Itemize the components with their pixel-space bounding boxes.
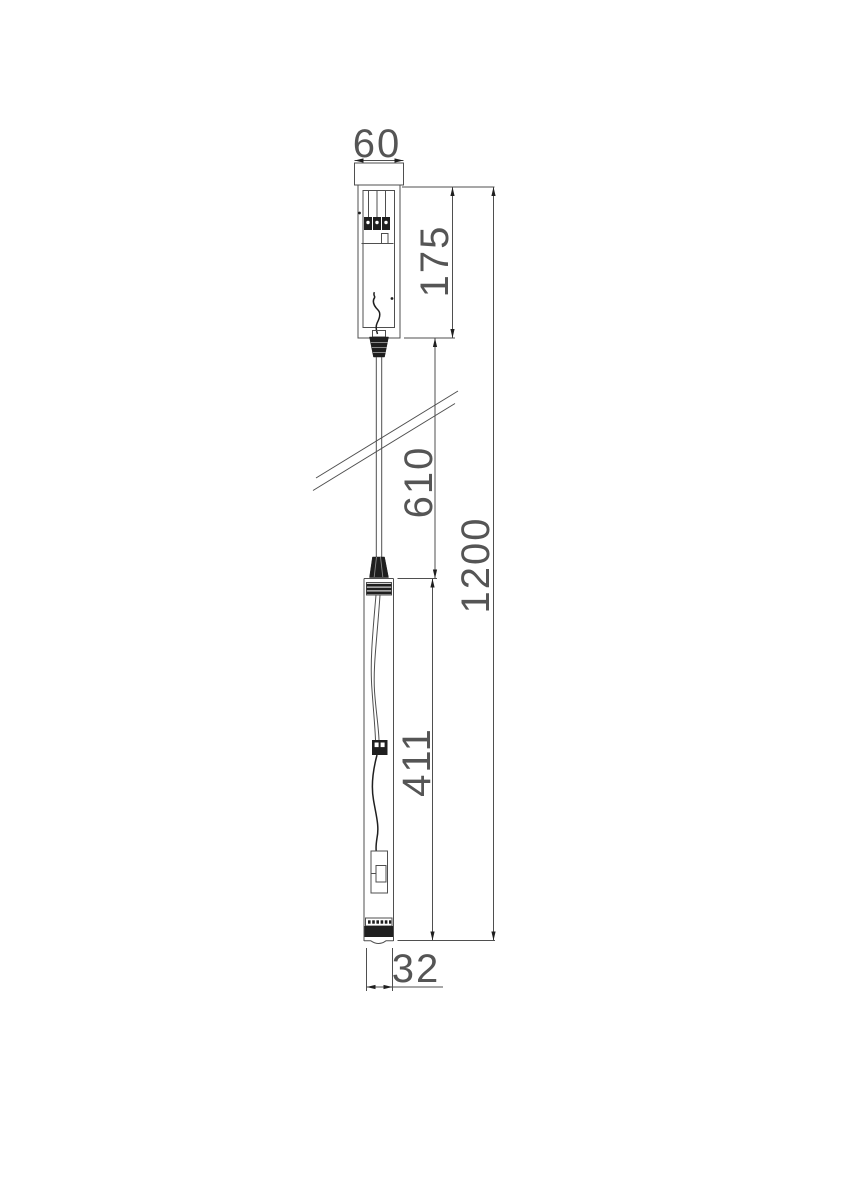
- driver-wire: [372, 755, 377, 851]
- led-strip: [366, 918, 393, 926]
- dim-cable-length-label: 610: [399, 446, 439, 519]
- technical-drawing-pendant-lamp: 60 175 610 1200 411 32: [0, 0, 849, 1200]
- tube-top-fitting: [367, 583, 392, 596]
- mounting-bracket: [362, 234, 394, 244]
- terminal-block: [364, 217, 390, 230]
- dim-canopy-width-label: 60: [353, 124, 402, 164]
- internal-wire-a: [371, 595, 376, 740]
- canopy-screw-bottom: [391, 297, 394, 300]
- suspension-cable: [376, 357, 381, 558]
- dim-canopy-height-label: 175: [415, 225, 455, 298]
- terminal-wires: [369, 191, 386, 217]
- dim-lamp-length-label: 411: [397, 727, 437, 797]
- led-driver: [371, 851, 388, 893]
- canopy-cable-gland: [370, 331, 389, 358]
- ceiling-canopy: [355, 163, 404, 357]
- tube-walls: [364, 579, 394, 942]
- canopy-top-plate: [355, 163, 404, 185]
- wire-connector: [372, 740, 388, 755]
- internal-wire-b: [374, 595, 380, 740]
- ext-lamp-width: [367, 948, 393, 991]
- canopy-screw-top: [358, 212, 361, 215]
- canopy-inner-panel: [363, 191, 395, 328]
- lamp-top-gland: [370, 557, 389, 578]
- bottom-cap: [364, 926, 394, 944]
- lamp-body: [364, 557, 394, 944]
- dim-total-height-label: 1200: [456, 517, 496, 614]
- dim-lamp-width-label: 32: [392, 949, 441, 989]
- drawing-linework: [0, 0, 849, 1200]
